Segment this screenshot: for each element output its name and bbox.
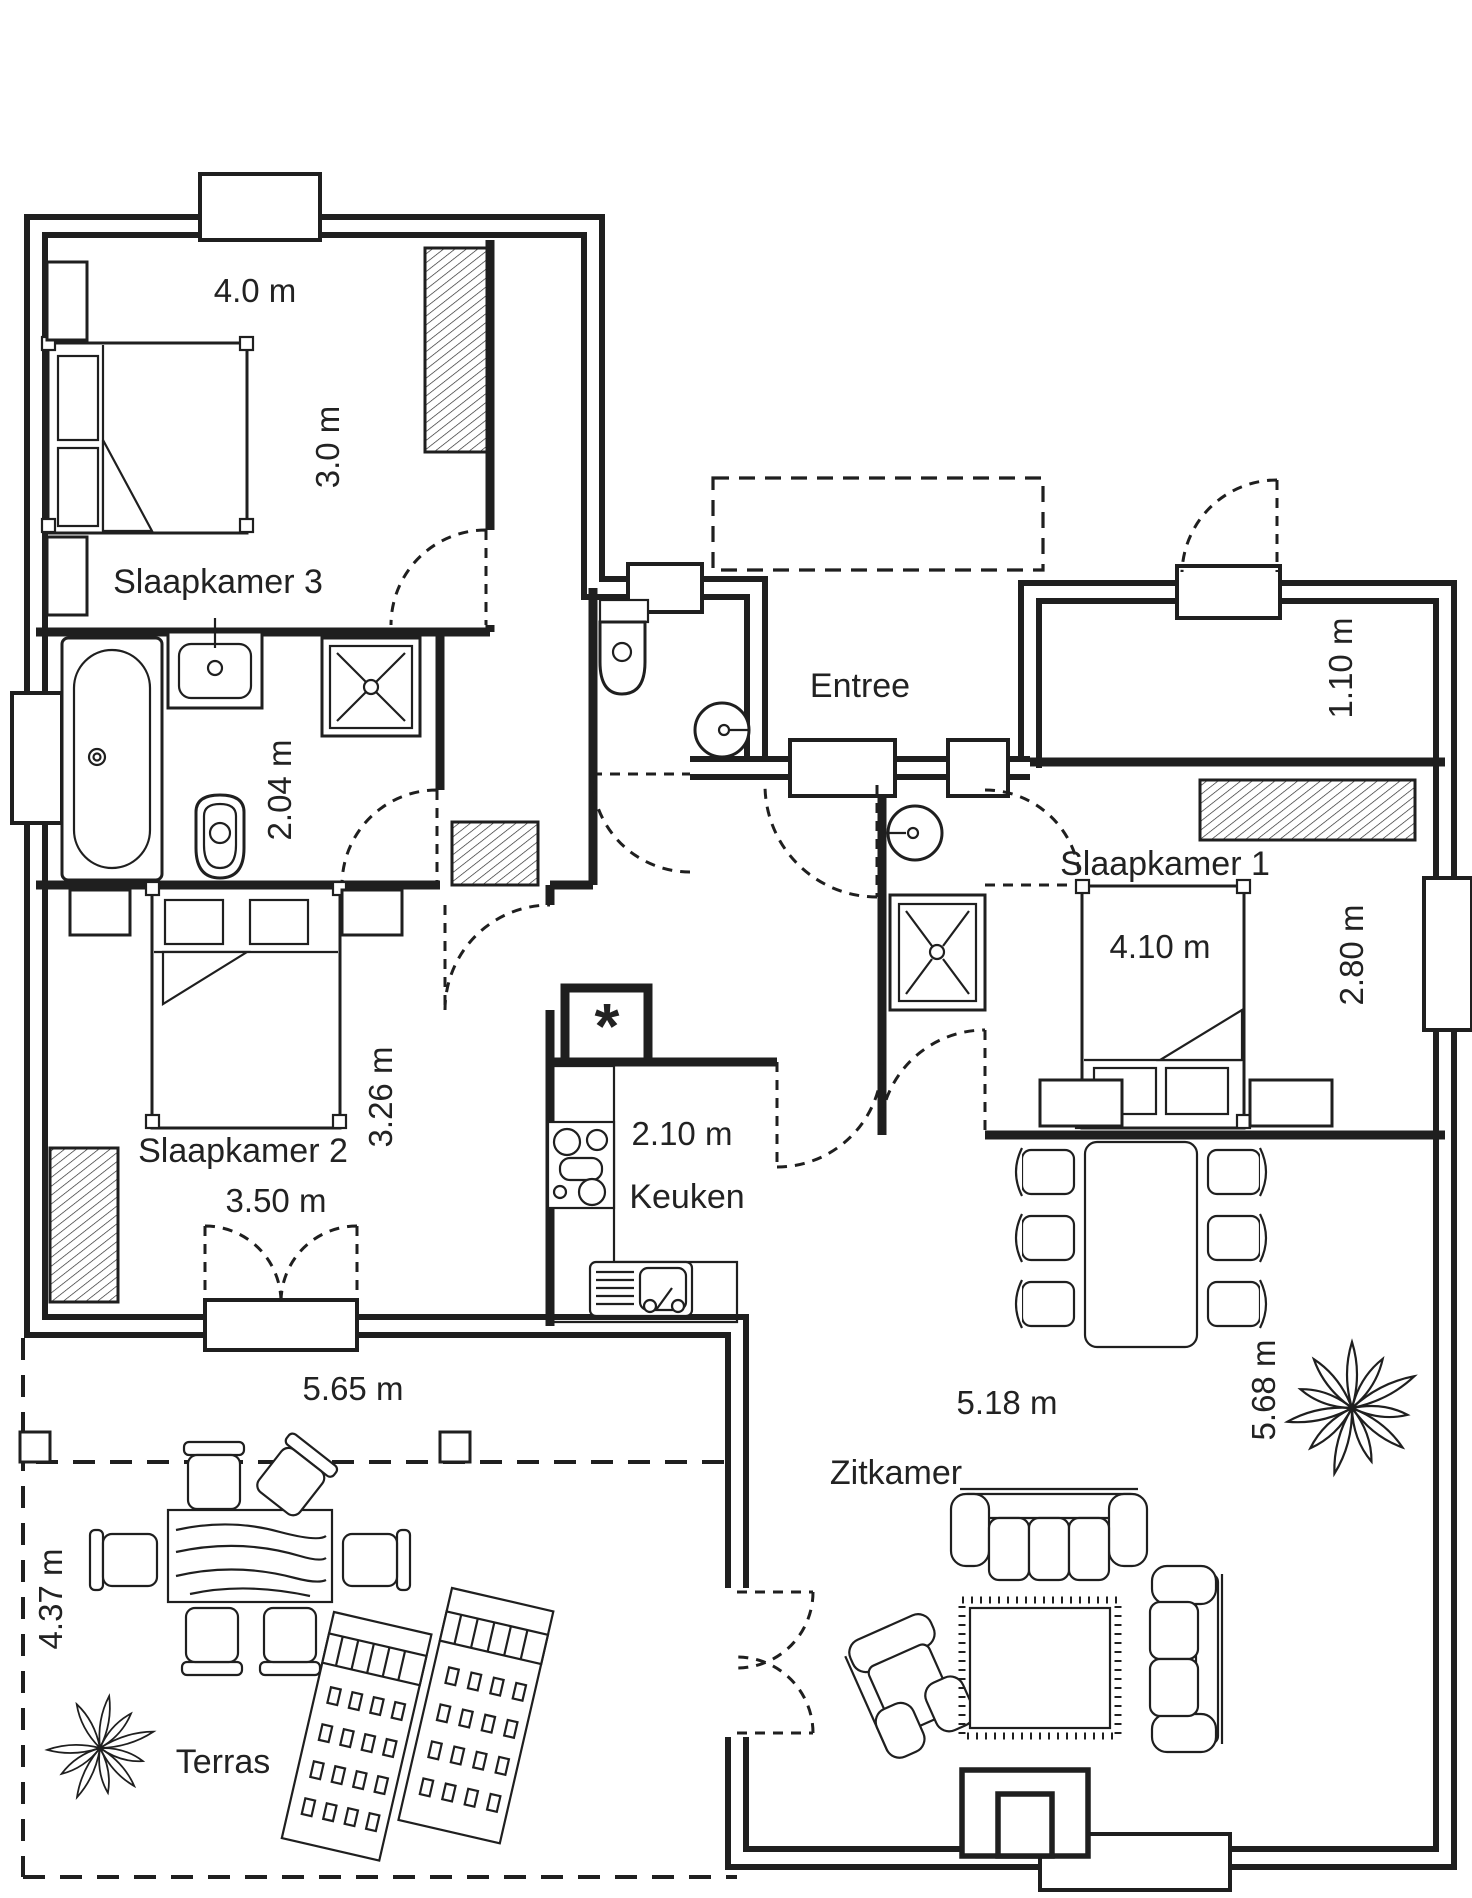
chair-back (260, 1662, 320, 1675)
room-slaapkamer2 (50, 882, 402, 1302)
nightstand (342, 890, 402, 935)
pillow (165, 900, 223, 944)
tap-handle (644, 1300, 656, 1312)
chair (1022, 1216, 1074, 1260)
sofa-cushion (1069, 1518, 1109, 1580)
door-slaapkamer2 (445, 905, 550, 1010)
label-entree: Entree (810, 667, 910, 705)
chair-back (182, 1662, 242, 1675)
chair-back (1260, 1280, 1266, 1328)
chair-seat (343, 1534, 397, 1586)
sofa-cushion (1150, 1602, 1198, 1659)
chair-back (397, 1530, 410, 1590)
tap-handle (672, 1300, 684, 1312)
chair-back (1016, 1214, 1022, 1262)
door-badkamer (342, 790, 437, 885)
burner (587, 1130, 607, 1150)
door-wc (592, 774, 690, 872)
shower-drain (364, 680, 378, 694)
technical-room-marker: * (595, 990, 620, 1062)
dim-zitkamer-width: 5.18 m (957, 1384, 1058, 1421)
nightstand (1040, 1080, 1122, 1126)
dim-slaapkamer2-width: 3.50 m (226, 1182, 327, 1219)
bed-post (42, 519, 55, 532)
front-sidelight (948, 740, 1008, 796)
chair (1208, 1216, 1260, 1260)
sofa-cushion (989, 1518, 1029, 1580)
floor-plan-svg: 4.0 m 3.0 m Slaapkamer 3 2.04 m Entree 1… (0, 0, 1472, 1898)
pillow (58, 448, 98, 526)
knob (554, 1186, 566, 1198)
bathtub-inner (74, 650, 150, 868)
chair-seat (103, 1534, 157, 1586)
wardrobe (50, 1148, 118, 1302)
dim-slaapkamer1-width: 4.10 m (1110, 928, 1211, 965)
wc-toilet-tank (600, 600, 648, 622)
sink-drain (208, 661, 222, 675)
nightstand (47, 262, 87, 340)
room-zitkamer (841, 1142, 1416, 1856)
bed-post (333, 1115, 346, 1128)
front-door-sill (790, 740, 895, 796)
armchair (841, 1608, 980, 1762)
window-badkamer (12, 693, 62, 823)
bed-post (1237, 1115, 1250, 1128)
chair-back (1016, 1148, 1022, 1196)
room-wc (452, 600, 749, 885)
bed-post (146, 882, 159, 895)
burner (554, 1129, 580, 1155)
label-slaapkamer1: Slaapkamer 1 (1060, 845, 1270, 883)
door-hal-zitkamer (777, 1062, 882, 1167)
terrace-post (20, 1432, 50, 1462)
label-zitkamer: Zitkamer (830, 1454, 962, 1492)
sofa-2seat (1150, 1566, 1222, 1752)
dim-slaapkamer3-depth: 3.0 m (309, 406, 346, 489)
chair (1022, 1282, 1074, 1326)
dim-badkamer-depth: 2.04 m (261, 740, 298, 841)
sofa-3seat (951, 1489, 1147, 1580)
wardrobe (425, 248, 488, 452)
dim-terras-depth: 4.37 m (32, 1549, 69, 1650)
dim-terras-width: 5.65 m (303, 1370, 404, 1407)
plant (1286, 1342, 1416, 1475)
window-slaapkamer1 (1424, 878, 1472, 1030)
bed-post (240, 519, 253, 532)
ensuite-drain (908, 828, 918, 838)
bed-post (146, 1115, 159, 1128)
window-slaapkamer3 (200, 174, 320, 240)
sofa-armrest (951, 1494, 989, 1566)
chair (1022, 1150, 1074, 1194)
wc-sink-drain (719, 725, 729, 735)
french-door-sill-slaapkamer2 (205, 1300, 357, 1350)
room-keuken (548, 988, 737, 1322)
burner-oval (560, 1158, 602, 1180)
bed-post (240, 337, 253, 350)
label-slaapkamer3: Slaapkamer 3 (113, 563, 323, 601)
door-ensuite-bottom (880, 1030, 985, 1135)
room-terras (47, 1432, 553, 1861)
wardrobe (1200, 780, 1415, 840)
chair (1208, 1282, 1260, 1326)
chair-back (1016, 1280, 1022, 1328)
dining-table (1085, 1142, 1197, 1347)
sofa-cushion (1150, 1659, 1198, 1716)
sofa-armrest (1109, 1494, 1147, 1566)
sofa-armrest (1152, 1566, 1216, 1604)
rug (970, 1608, 1110, 1728)
nightstand (70, 890, 130, 935)
label-keuken: Keuken (629, 1178, 744, 1216)
door-sill-kast (1177, 566, 1280, 618)
dim-kast-depth: 1.10 m (1322, 618, 1359, 719)
french-door-opening-zitkamer (722, 1588, 752, 1737)
pillow (250, 900, 308, 944)
hall-closet (452, 822, 538, 885)
chair-back (1260, 1214, 1266, 1262)
nightstand (47, 537, 87, 615)
dim-keuken-width: 2.10 m (632, 1115, 733, 1152)
wc-toilet (600, 622, 645, 694)
chair-seat (188, 1455, 240, 1509)
burner (579, 1179, 605, 1205)
pillow (58, 356, 98, 440)
door-front-swing (765, 785, 877, 897)
chair-seat (186, 1608, 238, 1662)
chair-back (90, 1530, 103, 1590)
terrace-post (440, 1432, 470, 1462)
chair-seat (264, 1608, 316, 1662)
dim-slaapkamer1-depth: 2.80 m (1333, 905, 1370, 1006)
pillow (1166, 1068, 1228, 1114)
chair (1208, 1150, 1260, 1194)
door-slaapkamer3 (391, 530, 486, 625)
floor-plan-page: 4.0 m 3.0 m Slaapkamer 3 2.04 m Entree 1… (0, 0, 1472, 1898)
label-terras: Terras (176, 1743, 270, 1781)
entrance-canopy (713, 478, 1043, 570)
dim-slaapkamer3-width: 4.0 m (214, 272, 297, 309)
sofa-cushion (1029, 1518, 1069, 1580)
dim-zitkamer-depth: 5.68 m (1245, 1340, 1282, 1441)
dim-slaapkamer2-depth: 3.26 m (362, 1047, 399, 1148)
fireplace-opening (998, 1794, 1052, 1856)
label-slaapkamer2: Slaapkamer 2 (138, 1132, 348, 1170)
chair-back (1260, 1148, 1266, 1196)
lounger (398, 1588, 553, 1843)
room-badkamer (62, 618, 420, 880)
shower-drain (930, 945, 944, 959)
door-kast-exterior (1182, 480, 1277, 572)
nightstand (1250, 1080, 1332, 1126)
chair-back (184, 1442, 244, 1455)
sofa-armrest (1152, 1714, 1216, 1752)
toilet-bowl (204, 804, 236, 868)
plant (47, 1695, 155, 1799)
french-doors-slaapkamer2 (205, 1226, 357, 1302)
